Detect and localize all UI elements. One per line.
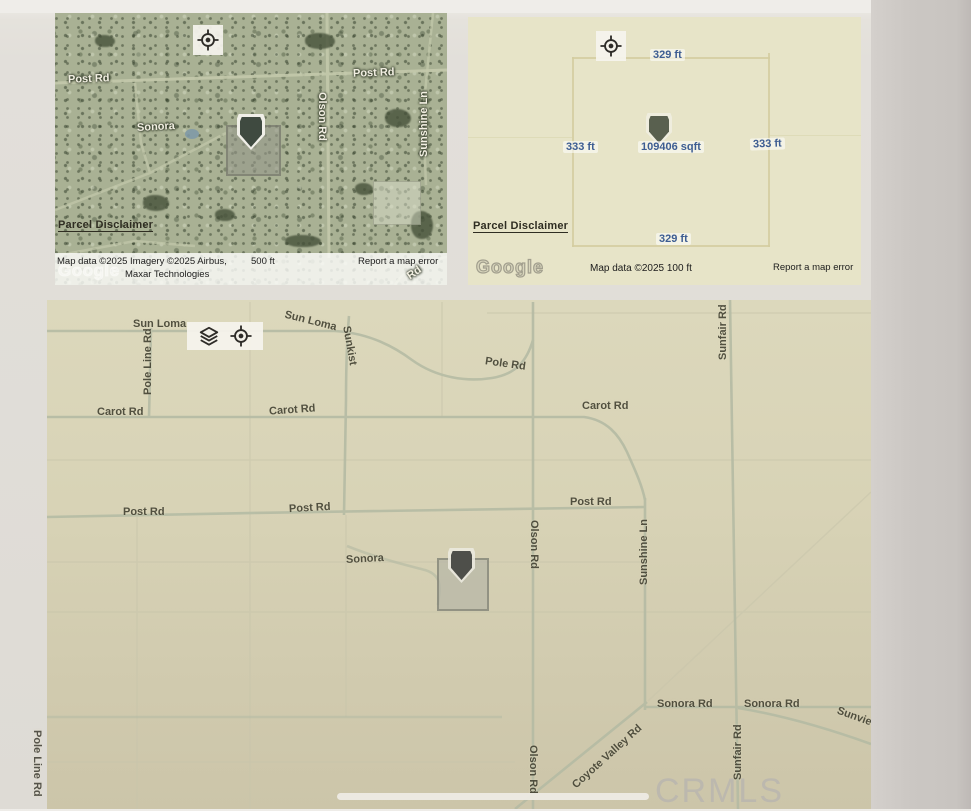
scale-label: 500 ft (251, 256, 275, 267)
pond (185, 129, 199, 139)
road-label-carot-rd: Carot Rd (582, 400, 628, 412)
pin-body (451, 551, 472, 580)
dimension-label-right: 333 ft (750, 137, 785, 150)
dimension-label-bottom: 329 ft (656, 233, 691, 245)
road-label-sonora-rd: Sonora Rd (657, 698, 713, 710)
map-attribution: Map data ©2025 100 ft (590, 263, 692, 274)
paper-margin-right (871, 0, 971, 809)
vegetation-blob (385, 109, 411, 127)
crmls-watermark: CRMLS (655, 772, 784, 811)
road-label-olson-rd: Olson Rd (527, 745, 539, 794)
map-attribution-line2: Maxar Technologies (125, 269, 209, 280)
parcel-marker-pin[interactable] (448, 548, 475, 583)
report-map-error-link[interactable]: Report a map error (773, 262, 853, 273)
road-label-olson-rd: Olson Rd (528, 520, 540, 569)
road-label-sonora: Sonora (346, 552, 384, 566)
grid-line (770, 135, 861, 136)
pin-body (240, 117, 262, 147)
map-attribution-line1: Map data ©2025 Imagery ©2025 Airbus, (57, 256, 227, 267)
road-label-sunshine-ln: Sunshine Ln (638, 519, 650, 585)
vegetation-blob (305, 33, 335, 49)
road-label-sonora: Sonora (137, 120, 175, 134)
road-label-sunfair-rd: Sunfair Rd (717, 304, 729, 360)
vegetation-blob (355, 183, 373, 195)
satellite-map[interactable]: Post Rd Post Rd Sonora Olson Rd Sunshine… (55, 13, 447, 285)
parcel-map[interactable]: 329 ft 333 ft 109406 sqft 333 ft 329 ft … (468, 17, 861, 285)
crosshair-icon (197, 29, 219, 51)
parcel-disclaimer-link[interactable]: Parcel Disclaimer (473, 220, 568, 233)
crosshair-icon[interactable] (230, 325, 252, 347)
crosshair-icon (600, 35, 622, 57)
vegetation-blob (215, 209, 235, 221)
road-label-post-rd: Post Rd (68, 72, 110, 85)
road-label-post-rd: Post Rd (289, 501, 331, 515)
report-map-error-link[interactable]: Report a map error (358, 256, 438, 267)
parcel-boundary-east (768, 53, 770, 247)
vegetation-blob (285, 235, 321, 247)
parcel-marker-pin[interactable] (237, 114, 265, 150)
road-label-sunshine-ln: Sunshine Ln (418, 91, 430, 157)
map-controls (187, 322, 263, 350)
dimension-label-top: 329 ft (650, 49, 685, 61)
road-label-pole-line-rd: Pole Line Rd (31, 730, 42, 797)
scale-bar (337, 793, 649, 800)
my-location-button[interactable] (193, 25, 223, 55)
scanned-listing-page: { "page": { "watermark": "CRMLS" }, "ico… (0, 0, 971, 809)
my-location-button[interactable] (596, 31, 626, 61)
road-label-sonora-rd: Sonora Rd (744, 698, 800, 710)
clipped-road-label-wrap: Pole Line Rd (30, 728, 42, 808)
road-label-carot-rd: Carot Rd (97, 406, 143, 418)
dimension-label-left: 333 ft (563, 141, 598, 153)
vegetation-blob (95, 35, 115, 47)
road-label-olson-rd: Olson Rd (316, 92, 328, 141)
parcel-disclaimer-link[interactable]: Parcel Disclaimer (58, 219, 153, 232)
road-label-pole-line-rd: Pole Line Rd (142, 328, 154, 395)
parcel-area-label: 109406 sqft (638, 141, 704, 153)
parcel-boundary-south (572, 245, 770, 247)
vegetation-blob (143, 195, 169, 211)
google-logo[interactable]: Google (476, 257, 544, 278)
layers-icon[interactable] (198, 325, 220, 347)
paper-margin-top (0, 0, 971, 13)
road-label-post-rd: Post Rd (570, 496, 612, 508)
road-map[interactable]: Sun Loma Sun Loma Sunkist Pole Line Rd P… (47, 300, 871, 809)
building-footprint (373, 181, 421, 225)
pin-body (649, 116, 669, 143)
road-label-post-rd: Post Rd (123, 506, 165, 518)
road-label-post-rd: Post Rd (353, 66, 395, 79)
grid-line (468, 137, 572, 138)
road-label-sun-loma: Sun Loma (133, 318, 186, 330)
